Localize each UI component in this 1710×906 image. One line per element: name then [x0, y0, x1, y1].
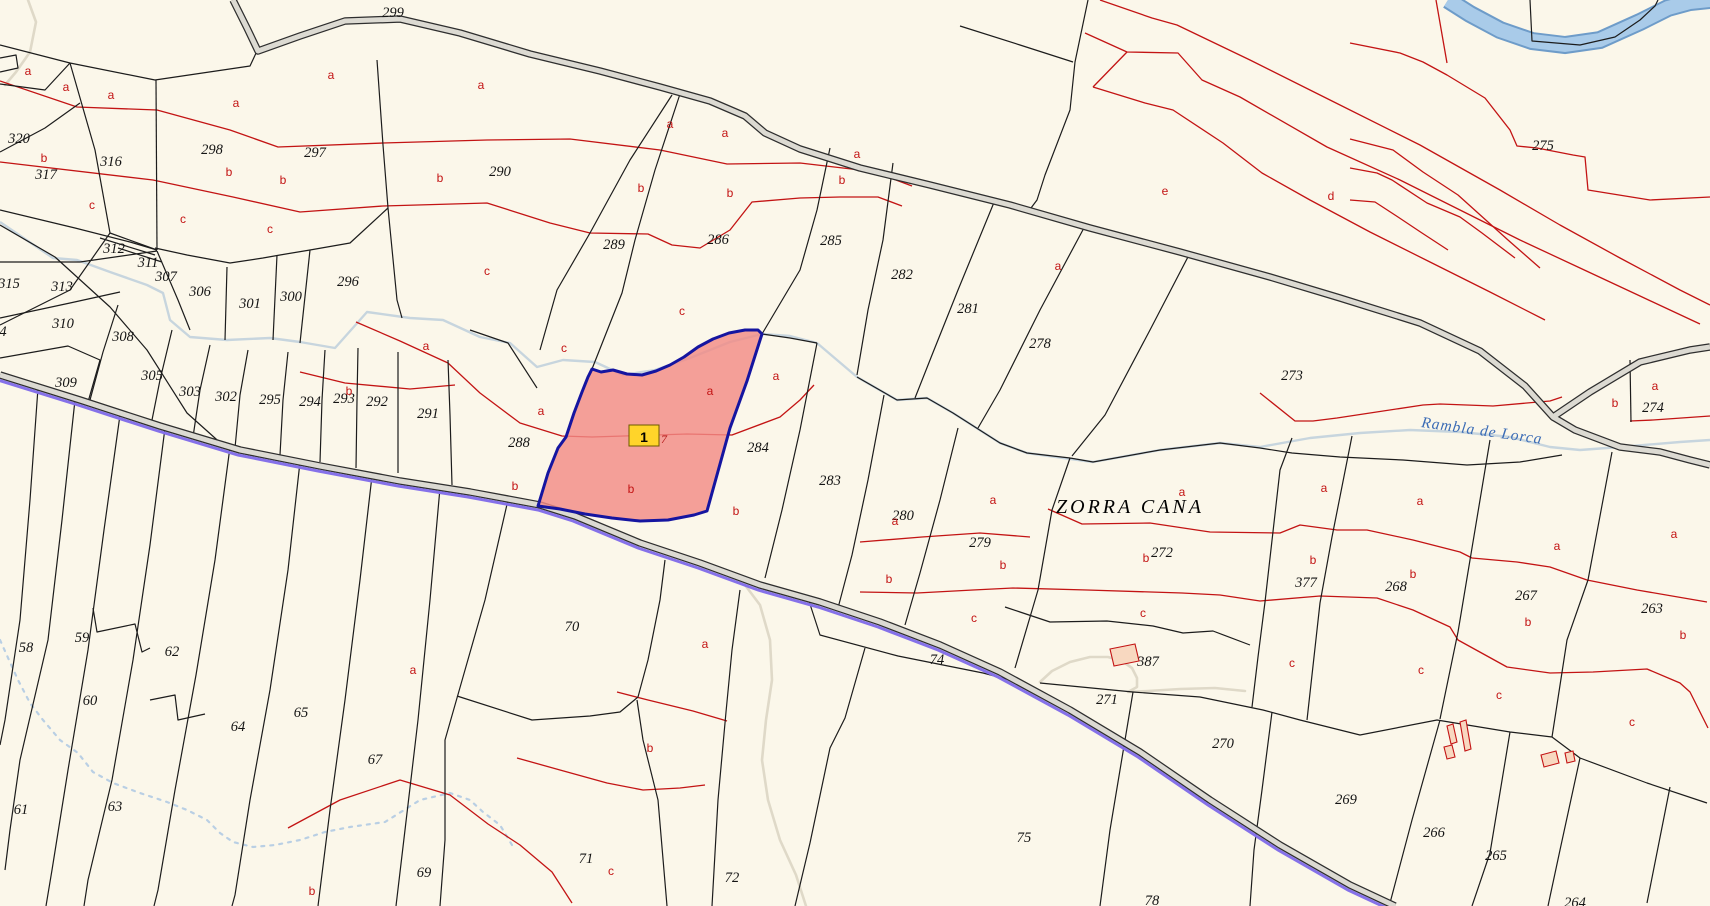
parcel-number-label: 67 — [368, 752, 383, 768]
parcel-number-label: 267 — [1515, 588, 1538, 604]
subparcel-letter: a — [538, 404, 545, 418]
subparcel-letter: a — [773, 369, 780, 383]
subparcel-letter: a — [1321, 481, 1328, 495]
parcel-number-label: 290 — [489, 164, 512, 180]
subparcel-letter: a — [722, 126, 729, 140]
parcel-number-label: 387 — [1136, 654, 1160, 670]
parcel-number-label: 279 — [969, 535, 992, 551]
subparcel-letter: e — [1162, 184, 1169, 198]
parcel-number-label: 266 — [1423, 825, 1446, 841]
parcel-number-label: 286 — [707, 232, 730, 248]
parcel-number-label: 63 — [108, 799, 123, 815]
selected-parcel-marker-label: 1 — [640, 429, 648, 445]
subparcel-letter: c — [1140, 606, 1146, 620]
subparcel-letter: a — [108, 88, 115, 102]
parcel-number-label: 281 — [957, 301, 979, 317]
parcel-number-label: 70 — [565, 619, 580, 635]
subparcel-letter: b — [1410, 567, 1417, 581]
parcel-number-label: 292 — [366, 394, 388, 410]
parcel-number-label: 312 — [102, 241, 125, 257]
subparcel-letter: c — [180, 212, 186, 226]
subparcel-letter: c — [89, 198, 95, 212]
building-footprint — [1565, 751, 1575, 763]
parcel-number-label: 315 — [0, 276, 20, 292]
parcel-number-label: 309 — [54, 375, 78, 391]
parcel-number-label: 302 — [214, 389, 237, 405]
parcel-number-label: 377 — [1294, 575, 1318, 591]
parcel-number-label: 61 — [14, 802, 29, 818]
subparcel-letter: a — [478, 78, 485, 92]
parcel-number-label: 297 — [304, 145, 327, 161]
parcel-number-label: 317 — [34, 167, 58, 183]
parcel-number-label: 69 — [417, 865, 432, 881]
parcel-number-label: 306 — [188, 284, 212, 300]
parcel-number-label: 264 — [1564, 895, 1586, 906]
parcel-number-label: 301 — [238, 296, 261, 312]
subparcel-letter: c — [608, 864, 614, 878]
parcel-number-label: 308 — [111, 329, 135, 345]
parcel-number-label: 284 — [747, 440, 769, 456]
subparcel-letter: a — [233, 96, 240, 110]
parcel-number-label: 64 — [231, 719, 246, 735]
subparcel-letter: c — [1496, 688, 1502, 702]
parcel-number-label: 75 — [1017, 830, 1032, 846]
parcel-number-label: 275 — [1532, 138, 1554, 154]
parcel-number-label: 4 — [0, 324, 7, 340]
subparcel-letter: b — [839, 173, 846, 187]
subparcel-letter: c — [679, 304, 685, 318]
parcel-number-label: 272 — [1151, 545, 1173, 561]
subparcel-letter: c — [1629, 715, 1635, 729]
parcel-number-label: 58 — [19, 640, 34, 656]
subparcel-letter: c — [484, 264, 490, 278]
subparcel-letter: b — [638, 181, 645, 195]
subparcel-letter: b — [309, 884, 316, 898]
subparcel-letter: a — [1671, 527, 1678, 541]
parcel-number-label: 60 — [83, 693, 98, 709]
subparcel-letter: b — [647, 741, 654, 755]
parcel-number-label: 288 — [508, 435, 531, 451]
parcel-number-label: 295 — [259, 392, 281, 408]
parcel-number-label: 313 — [50, 279, 73, 295]
subparcel-letter: b — [512, 479, 519, 493]
parcel-number-label: 265 — [1485, 848, 1507, 864]
parcel-number-label: 299 — [382, 5, 405, 21]
subparcel-letter: b — [1000, 558, 1007, 572]
parcel-number-label: 78 — [1145, 893, 1160, 906]
subparcel-letter: a — [328, 68, 335, 82]
subparcel-letter: a — [892, 514, 899, 528]
parcel-number-label: 268 — [1385, 579, 1408, 595]
parcel-number-label: 269 — [1335, 792, 1358, 808]
subparcel-letter: a — [990, 493, 997, 507]
selected-parcel-sub-label: 7 — [661, 432, 668, 446]
parcel-number-label: 291 — [417, 406, 439, 422]
subparcel-letter: a — [702, 637, 709, 651]
parcel-number-label: 320 — [7, 131, 31, 147]
parcel-number-label: 296 — [337, 274, 360, 290]
subparcel-letter: c — [561, 341, 567, 355]
parcel-number-label: 289 — [603, 237, 626, 253]
subparcel-letter: a — [707, 384, 714, 398]
subparcel-letter: a — [410, 663, 417, 677]
parcel-number-label: 74 — [930, 652, 945, 668]
subparcel-letter: a — [1417, 494, 1424, 508]
parcel-number-label: 316 — [99, 154, 123, 170]
parcel-number-label: 59 — [75, 630, 90, 646]
subparcel-letter: b — [1525, 615, 1532, 629]
subparcel-letter: b — [346, 384, 353, 398]
parcel-number-label: 62 — [165, 644, 180, 660]
subparcel-letter: a — [1055, 259, 1062, 273]
parcel-number-label: 270 — [1212, 736, 1235, 752]
subparcel-letter: b — [1310, 553, 1317, 567]
cadastral-map[interactable]: 2993203173162982972902892862852822812782… — [0, 0, 1710, 906]
cadastral-map-viewport[interactable]: 2993203173162982972902892862852822812782… — [0, 0, 1710, 906]
subparcel-letter: a — [1652, 379, 1659, 393]
parcel-number-label: 283 — [819, 473, 841, 489]
parcel-number-label: 303 — [178, 384, 201, 400]
parcel-number-label: 71 — [579, 851, 594, 867]
subparcel-letter: a — [25, 64, 32, 78]
subparcel-letter: a — [854, 147, 861, 161]
subparcel-letter: b — [1680, 628, 1687, 642]
parcel-number-label: 305 — [140, 368, 163, 384]
parcel-number-label: 310 — [51, 316, 75, 332]
subparcel-letter: b — [628, 482, 635, 496]
subparcel-letter: a — [1554, 539, 1561, 553]
subparcel-letter: c — [971, 611, 977, 625]
subparcel-letter: b — [727, 186, 734, 200]
subparcel-letter: b — [886, 572, 893, 586]
subparcel-letter: c — [1418, 663, 1424, 677]
subparcel-letter: c — [267, 222, 273, 236]
subparcel-letter: b — [1612, 396, 1619, 410]
subparcel-letter: a — [667, 117, 674, 131]
parcel-number-label: 274 — [1642, 400, 1664, 416]
parcel-number-label: 285 — [820, 233, 842, 249]
parcel-number-label: 271 — [1096, 692, 1118, 708]
subparcel-letter: d — [1328, 189, 1335, 203]
parcel-number-label: 307 — [154, 269, 178, 285]
subparcel-letter: b — [41, 151, 48, 165]
subparcel-letter: b — [280, 173, 287, 187]
subparcel-letter: b — [437, 171, 444, 185]
subparcel-letter: b — [226, 165, 233, 179]
parcel-number-label: 278 — [1029, 336, 1052, 352]
parcel-number-label: 282 — [891, 267, 913, 283]
place-name-label: ZORRA CANA — [1056, 496, 1204, 518]
parcel-number-label: 300 — [279, 289, 303, 305]
subparcel-letter: b — [1143, 551, 1150, 565]
subparcel-letter: b — [733, 504, 740, 518]
parcel-number-label: 273 — [1281, 368, 1303, 384]
subparcel-letter: a — [63, 80, 70, 94]
subparcel-letter: a — [423, 339, 430, 353]
parcel-number-label: 72 — [725, 870, 740, 886]
subparcel-letter: c — [1289, 656, 1295, 670]
parcel-number-label: 65 — [294, 705, 309, 721]
parcel-number-label: 294 — [299, 394, 321, 410]
parcel-number-label: 298 — [201, 142, 224, 158]
parcel-number-label: 263 — [1641, 601, 1663, 617]
